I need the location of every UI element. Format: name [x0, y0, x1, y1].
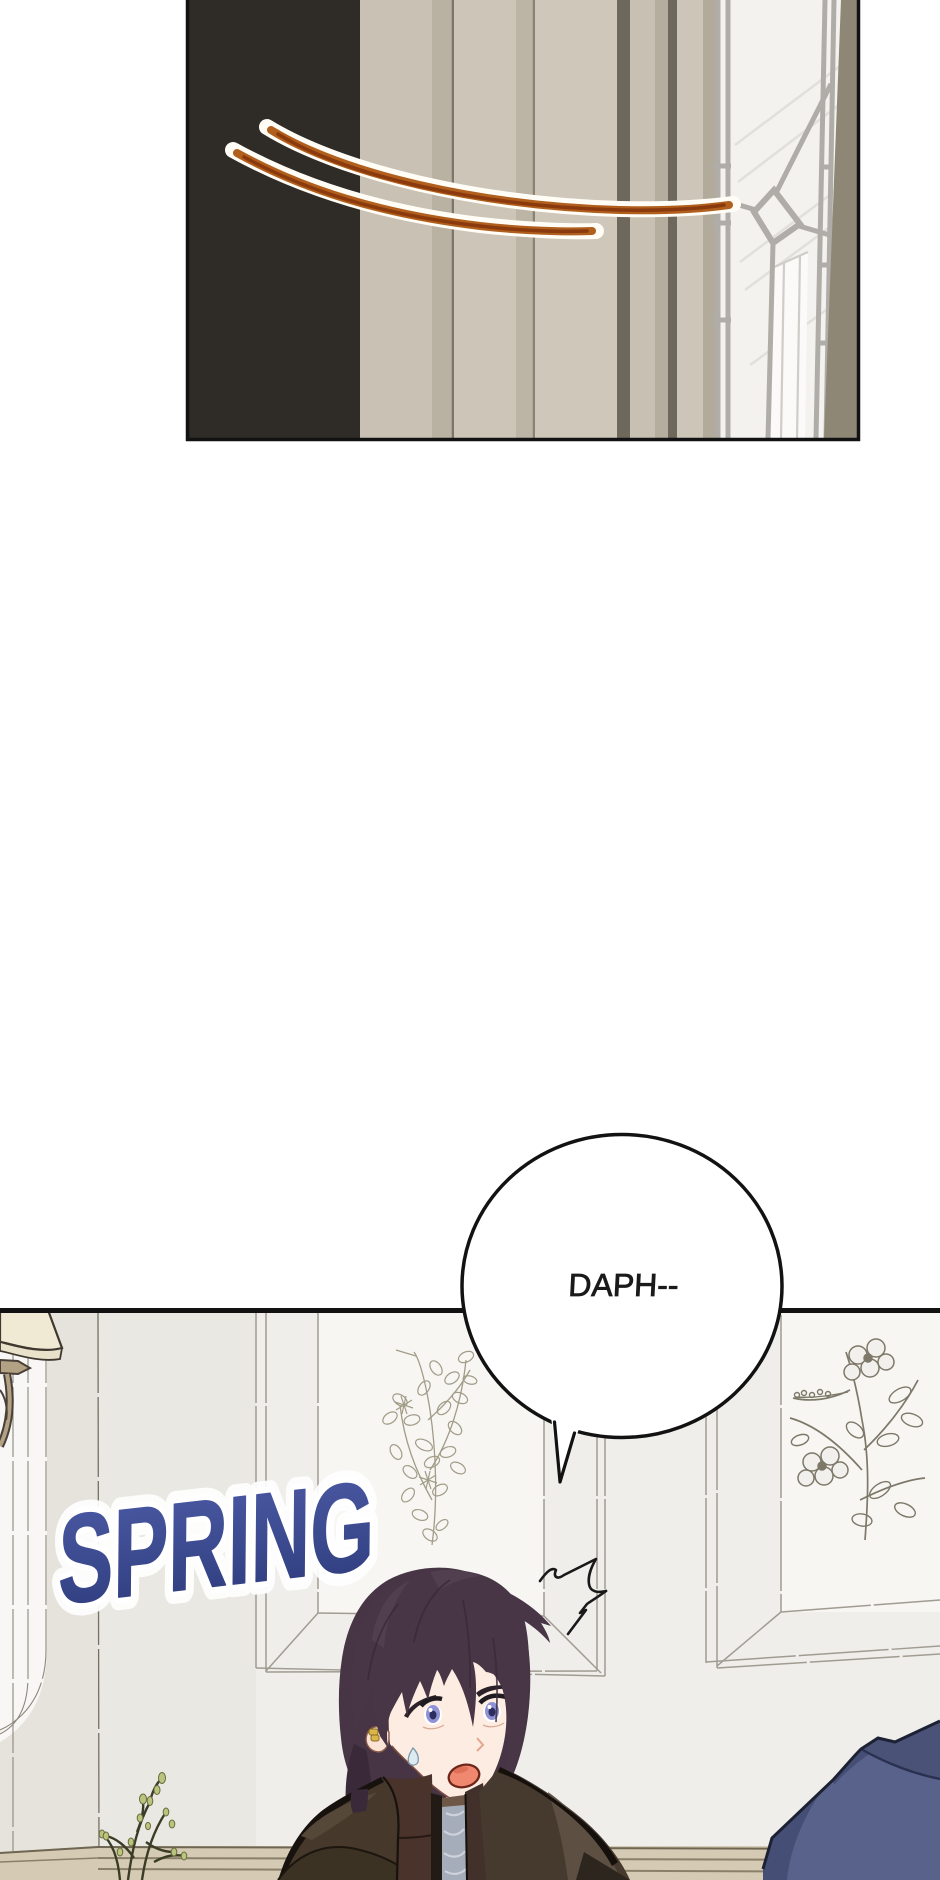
svg-text:DAPH--: DAPH--: [568, 1267, 680, 1303]
